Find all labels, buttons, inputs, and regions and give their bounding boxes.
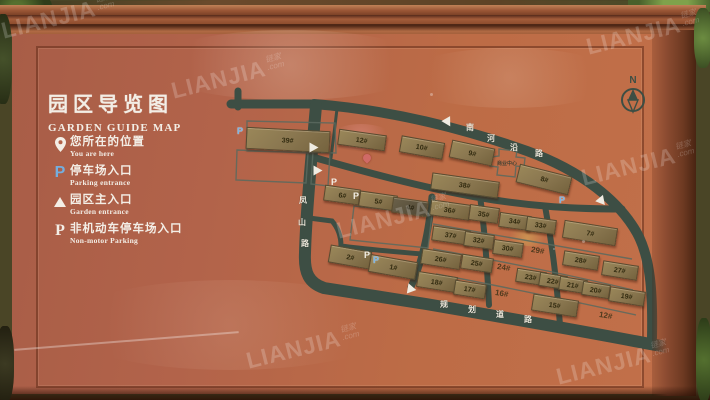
sign-right-bevel [652, 30, 696, 396]
plot-label-16: 16# [494, 288, 509, 299]
building-label: 20# [590, 285, 603, 295]
building-label: 28# [575, 255, 588, 265]
building-label: 17# [464, 284, 477, 294]
building-label: 1# [388, 262, 397, 271]
building-label: 36# [444, 205, 457, 214]
building-label: 19# [621, 291, 634, 301]
road-name-char: 山 [298, 217, 306, 228]
photo-of-garden-map-sign: 园区导览图 GARDEN GUIDE MAP 您所在的位置 You are he… [0, 0, 710, 400]
location-pin-icon [50, 137, 70, 152]
building-label: 37# [445, 230, 458, 239]
building-label: 4# [406, 203, 415, 212]
building-label: 35# [478, 209, 491, 218]
parking-entrance-icon: P [55, 166, 66, 180]
building-label: 12# [356, 135, 369, 144]
scratch-speck [553, 248, 555, 250]
main-entrance-marker [310, 143, 319, 153]
non-motor-parking-marker: P [331, 177, 337, 187]
compass-north-label: N [619, 76, 647, 86]
parking-entrance-marker: P [373, 255, 379, 265]
legend-label-cn: 停车场入口 [70, 165, 133, 178]
non-motor-parking-marker: P [353, 191, 359, 201]
road-name-char: 河 [487, 133, 495, 144]
scratch-speck [430, 93, 433, 96]
road-name-char: 路 [301, 238, 309, 249]
building-label: 26# [435, 254, 448, 264]
building-label: 25# [471, 258, 484, 268]
legend-row-parking-entrance: P 停车场入口 Parking entrance [50, 165, 183, 187]
legend-label-en: Garden entrance [70, 207, 133, 216]
sign-title-cn: 园区导览图 [48, 88, 181, 117]
road-name-char: 沿 [510, 142, 518, 153]
road-name-char: 路 [535, 148, 543, 159]
road-name-char: 规 [440, 299, 448, 310]
building-label: 2# [345, 252, 354, 261]
facility-label: 商业中心 [497, 160, 517, 167]
building-label: 21# [567, 280, 580, 290]
building-label: 18# [431, 277, 444, 287]
plot-label-29: 29# [530, 245, 545, 256]
building-label: 39# [282, 136, 294, 145]
legend-label-cn: 您所在的位置 [70, 136, 145, 149]
building-label: 27# [614, 265, 627, 275]
legend-label-en: Non-motor Parking [70, 236, 183, 245]
building-label: 7# [586, 228, 595, 237]
main-entrance-icon [54, 197, 66, 207]
legend: 您所在的位置 You are here P 停车场入口 Parking entr… [50, 136, 183, 252]
road-name-char: 道 [496, 309, 504, 320]
building-label: 23# [525, 272, 538, 282]
scratch-speck [582, 240, 585, 243]
non-motor-parking-marker: P [364, 250, 370, 260]
building-label: 22# [547, 276, 560, 286]
building-label: 38# [459, 180, 472, 189]
foliage-right-edge [694, 8, 710, 68]
road-name-char: 划 [468, 304, 476, 315]
sign-bottom-edge [0, 386, 710, 400]
plot-label-24: 24# [496, 262, 511, 273]
building-label: 6# [338, 191, 347, 200]
foliage-bottom-right [696, 318, 710, 400]
road-name-char: 路 [524, 314, 532, 325]
road-name-char: 南 [466, 122, 474, 133]
building-label: 32# [473, 235, 486, 244]
sign-title-en: GARDEN GUIDE MAP [48, 122, 181, 134]
legend-row-non-motor-parking: P 非机动车停车场入口 Non-motor Parking [50, 223, 183, 245]
building-label: 15# [549, 300, 562, 310]
parking-entrance-marker: P [559, 195, 565, 205]
legend-label-en: Parking entrance [70, 178, 133, 187]
building-label: 33# [535, 220, 548, 229]
building-label: 30# [502, 243, 515, 252]
non-motor-parking-icon: P [55, 224, 65, 238]
foliage-left-edge [0, 14, 12, 104]
compass-rose-icon [619, 86, 647, 116]
plot-label-12: 12# [598, 310, 613, 321]
main-entrance-marker [314, 166, 323, 176]
building-label: 34# [509, 216, 522, 225]
building-label: 10# [416, 142, 429, 152]
road-name-char: 凤 [299, 195, 307, 206]
legend-label-en: You are here [70, 149, 145, 158]
building-label: 9# [467, 148, 476, 157]
foliage-bottom-left [0, 326, 14, 400]
legend-row-you-are-here: 您所在的位置 You are here [50, 136, 183, 158]
legend-label-cn: 非机动车停车场入口 [70, 223, 183, 236]
parking-entrance-marker: P [237, 126, 243, 136]
legend-label-cn: 园区主入口 [70, 194, 133, 207]
compass: N [619, 76, 647, 121]
building-label: 8# [539, 174, 549, 184]
legend-row-main-entrance: 园区主入口 Garden entrance [50, 194, 183, 216]
building-label: 5# [374, 197, 383, 206]
